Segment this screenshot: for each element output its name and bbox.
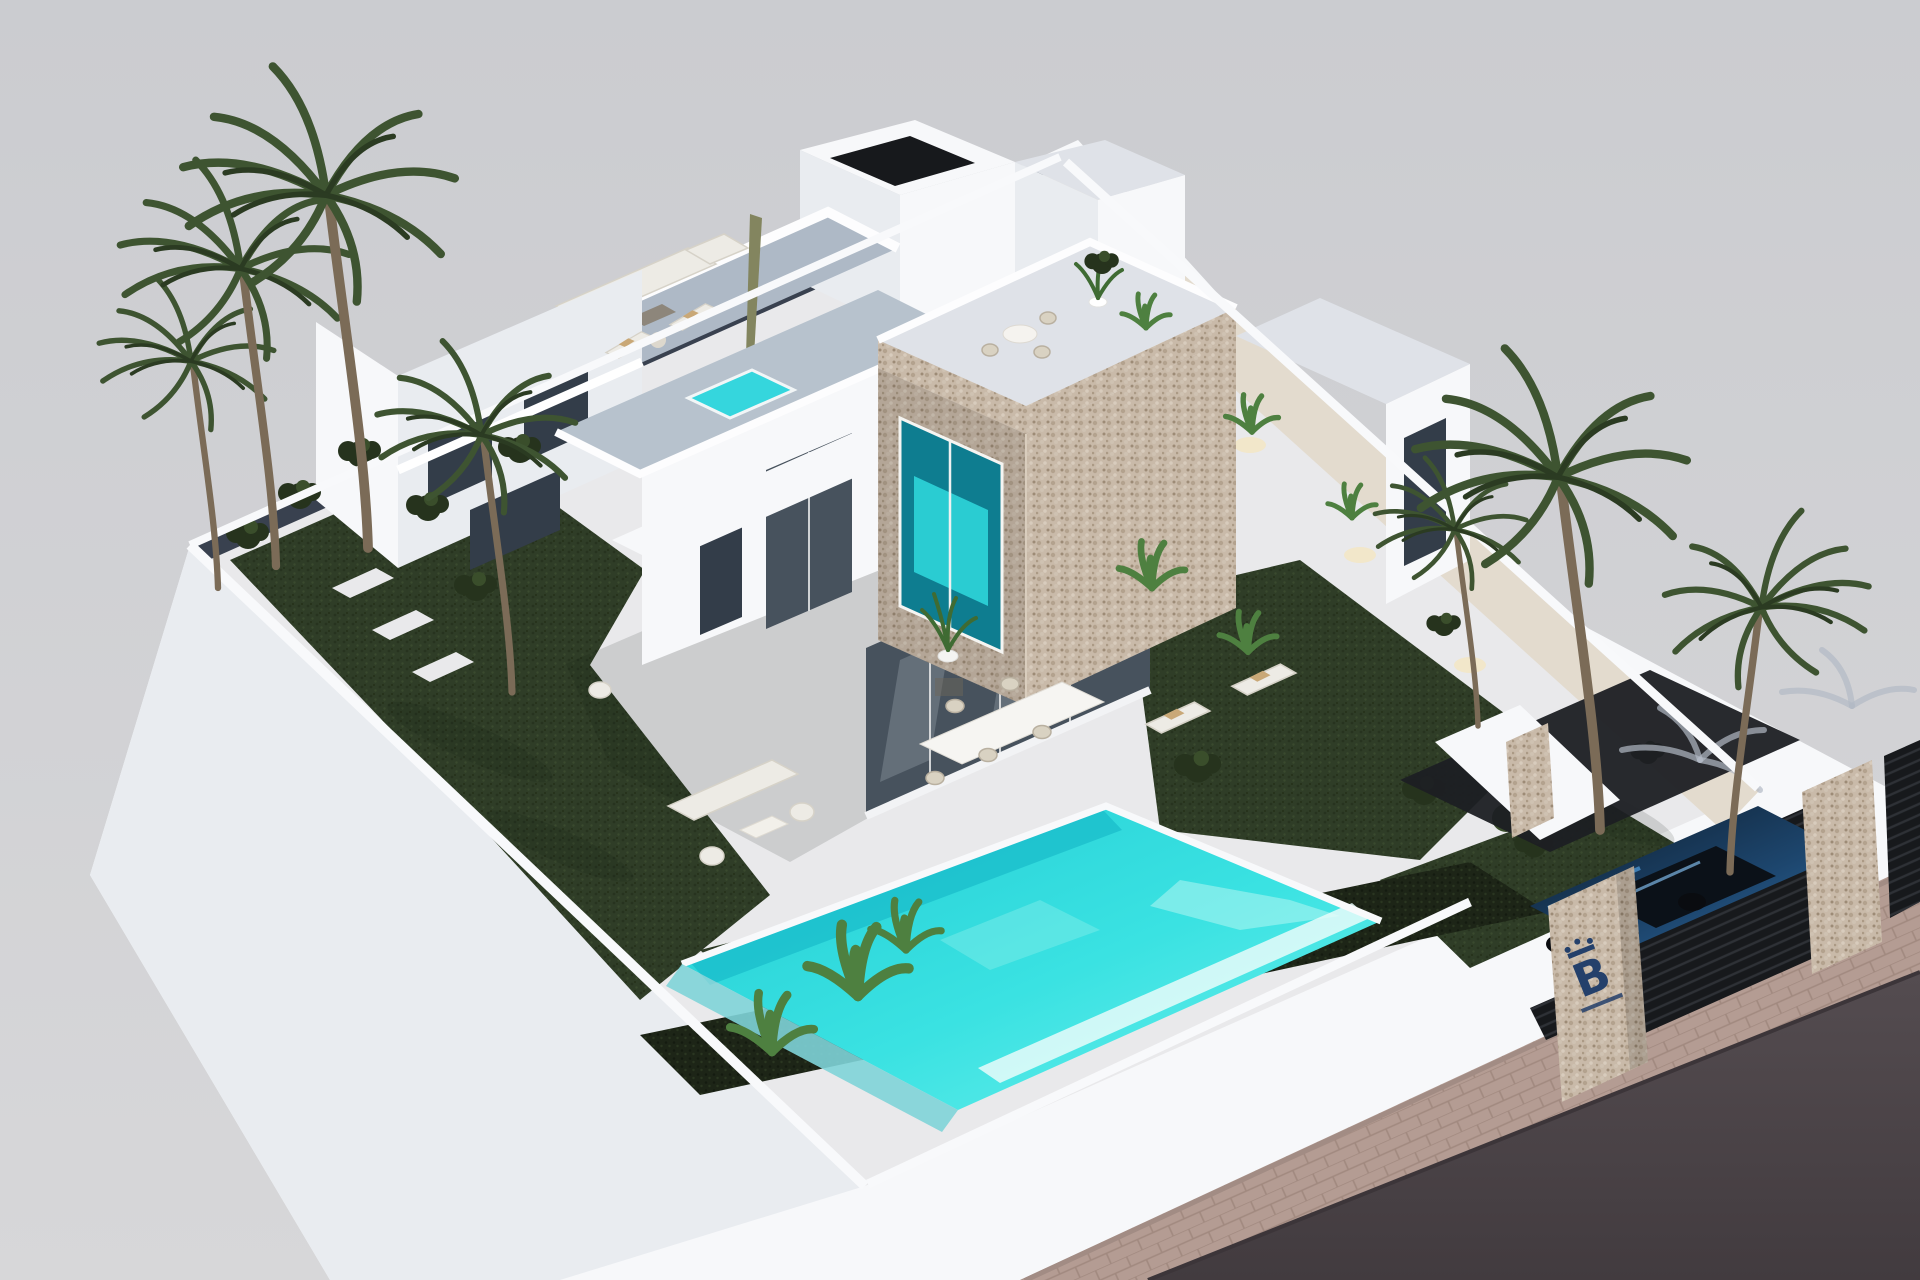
chair xyxy=(1040,312,1056,324)
gate-pillar xyxy=(1802,760,1882,974)
villa-render: B xyxy=(0,0,1920,1280)
brand-pillar: B xyxy=(1548,866,1648,1102)
uplight-glow xyxy=(1344,547,1376,563)
chair xyxy=(1034,346,1050,358)
garden-armchair xyxy=(700,847,724,865)
side-gate-panel xyxy=(1884,740,1920,918)
round-table xyxy=(1003,325,1037,343)
chair xyxy=(982,344,998,356)
garden-armchair xyxy=(790,803,814,821)
dining-chair xyxy=(1001,678,1019,691)
interior-dining-hint xyxy=(935,678,963,696)
dining-chair xyxy=(979,749,997,762)
dining-chair xyxy=(926,772,944,785)
low-wall-pillar xyxy=(1506,723,1554,838)
car-wheel xyxy=(1678,893,1706,911)
render-canvas: B xyxy=(0,0,1920,1280)
armchair xyxy=(589,682,611,698)
uplight-glow xyxy=(1234,437,1266,453)
dining-chair xyxy=(946,700,964,713)
dining-chair xyxy=(1033,726,1051,739)
